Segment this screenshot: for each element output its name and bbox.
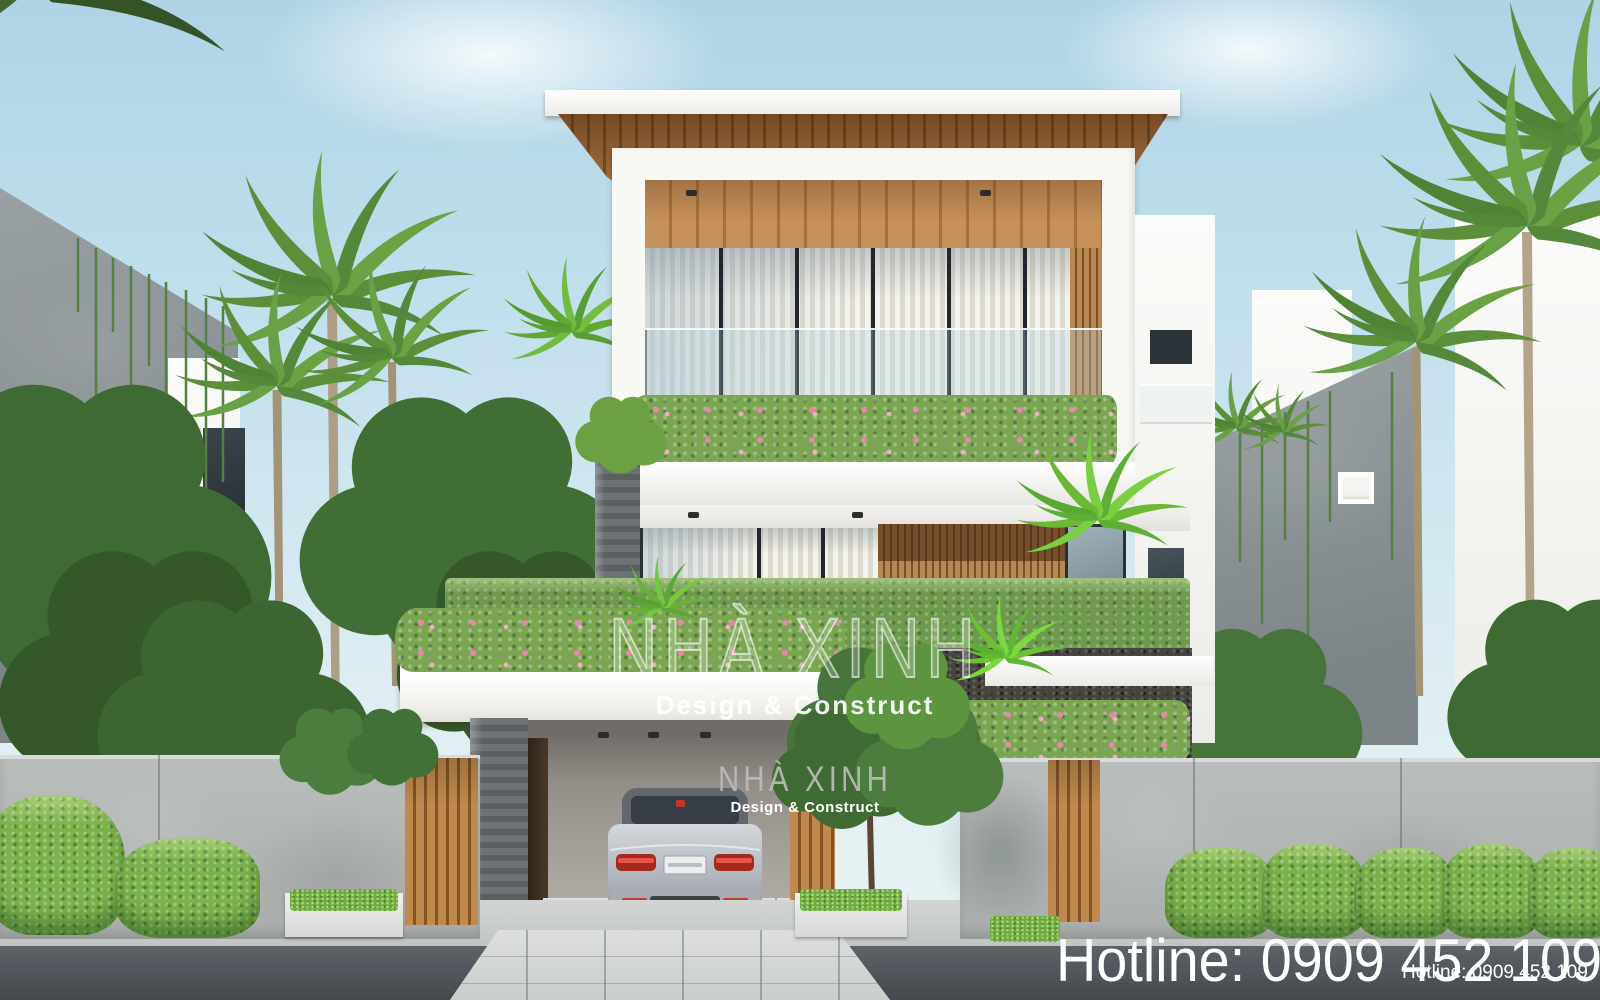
hedge-bush <box>115 838 260 938</box>
grass-strip <box>290 889 398 911</box>
villa-render-scene: NHÀ XINH Design & Construct NHÀ XINH Des… <box>0 0 1600 1000</box>
hanging-plant <box>575 397 666 474</box>
hotline-banner-large: Hotline: 0909 452 109 <box>1056 926 1600 995</box>
hedge-bush <box>1165 848 1275 938</box>
hedge-bush <box>0 795 125 935</box>
hedge-bush <box>1442 844 1542 938</box>
hedge-bush <box>1528 848 1600 938</box>
watermark-brand-large: NHÀ XINH <box>527 600 1063 697</box>
grass-strip <box>800 889 902 911</box>
watermark-tagline-large: Design & Construct <box>460 690 1130 721</box>
hedge-bush <box>1262 844 1367 938</box>
hedge-bush <box>1354 848 1454 938</box>
watermark-brand-small: NHÀ XINH <box>599 760 1011 800</box>
watermark-tagline-small: Design & Construct <box>560 799 1050 816</box>
grass-strip <box>990 916 1060 942</box>
areca-palm <box>1013 429 1189 558</box>
hotline-banner-small: Hotline: 0909 452 109 <box>1402 962 1588 984</box>
